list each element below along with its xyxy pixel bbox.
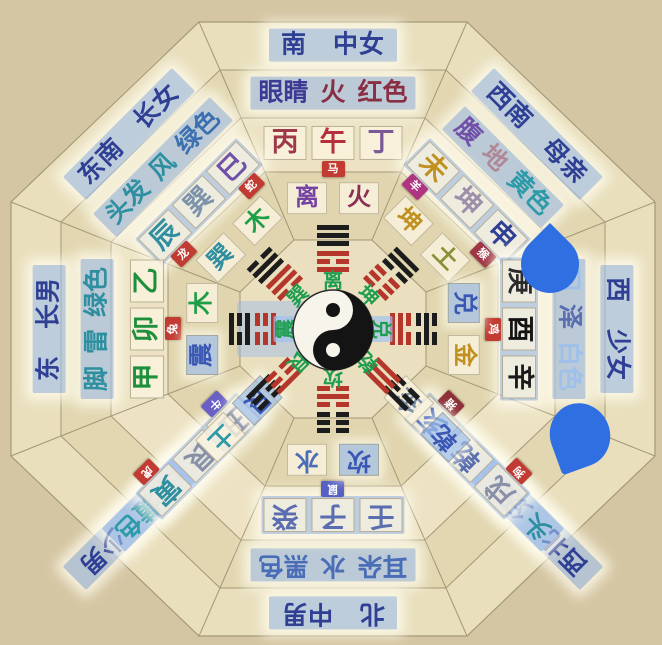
attribute-text: 水 — [320, 551, 345, 580]
direction-text: 西 — [603, 277, 632, 303]
zodiac-text: 蛇 — [243, 177, 260, 194]
taiji-black-dot — [326, 303, 340, 317]
family-member-text: 中女 — [333, 31, 385, 60]
inner-trigram-black-east — [227, 313, 251, 345]
stem-cell: 甲 — [130, 356, 164, 399]
stem-text: 酉 — [504, 316, 535, 343]
element-cell: 金 — [448, 335, 480, 375]
element-cell: 木 — [186, 283, 218, 323]
inner-trigram-black-south — [317, 223, 349, 247]
element-cell: 水 — [287, 444, 327, 476]
stem-cell: 辛 — [502, 356, 536, 399]
direction-text: 南 — [281, 31, 307, 60]
attribute-text: 眼睛 — [258, 79, 308, 108]
zodiac-text: 马 — [328, 162, 339, 175]
stem-cell: 午马 — [312, 126, 355, 160]
attribute-text: 黑色 — [258, 551, 308, 580]
stem-text: 癸 — [272, 500, 299, 531]
zodiac-text: 猴 — [474, 245, 491, 262]
trigram-name-text: 坎 — [347, 447, 371, 475]
trigram-name-cell: 离 — [287, 182, 327, 214]
trigram-element-label-south: 离火 — [287, 182, 379, 214]
family-member-text: 中男 — [281, 599, 333, 628]
family-member-text: 少女 — [603, 329, 632, 381]
attribute-text: 雷 — [83, 329, 112, 354]
zodiac-text: 牛 — [206, 396, 223, 413]
trigram-name-text: 离 — [295, 183, 319, 211]
stems-row-north: 壬子鼠癸 — [262, 496, 405, 534]
attributes-label-north: 耳朵水黑色 — [250, 549, 415, 582]
attribute-text: 绿色 — [83, 267, 112, 317]
attribute-text: 耳朵 — [358, 551, 408, 580]
zodiac-text: 龙 — [175, 245, 192, 262]
attribute-text: 红色 — [358, 79, 408, 108]
stem-text: 卯 — [131, 316, 162, 343]
direction-family-label-east: 东长男 — [33, 265, 66, 393]
trigram-name-cell: 震 — [186, 335, 218, 375]
inner-trigram-black-west — [415, 313, 439, 345]
direction-family-label-west: 西少女 — [601, 265, 634, 393]
family-member-text: 长男 — [35, 277, 64, 329]
zodiac-badge: 鼠 — [322, 481, 345, 497]
stem-cell: 酉鸡 — [502, 308, 536, 351]
trigram-element-label-west: 兑金 — [448, 283, 480, 375]
attribute-text: 白色 — [555, 341, 584, 391]
stem-cell: 壬 — [360, 498, 403, 532]
attributes-label-east: 脚雷绿色 — [81, 259, 114, 399]
zodiac-text: 猪 — [443, 396, 460, 413]
zodiac-text: 兔 — [166, 324, 179, 335]
zodiac-text: 羊 — [406, 177, 423, 194]
direction-family-label-south: 南中女 — [269, 29, 397, 62]
zodiac-badge: 鸡 — [485, 318, 501, 341]
stem-cell: 乙 — [130, 260, 164, 303]
stem-text: 甲 — [131, 364, 162, 391]
element-text: 水 — [295, 447, 319, 475]
attributes-label-south: 眼睛火红色 — [250, 77, 415, 110]
zodiac-text: 狗 — [510, 464, 527, 481]
stem-text: 丁 — [368, 127, 395, 158]
stem-cell: 丁 — [360, 126, 403, 160]
zodiac-text: 虎 — [139, 464, 156, 481]
stems-row-east: 甲卯兔乙 — [128, 258, 166, 401]
attribute-text: 脚 — [83, 366, 112, 391]
bagua-chart: 南中女眼睛火红色丙午马丁离火离东南长女头发风绿色辰龙巽巳蛇巽木巽西南母亲腹地黄色… — [0, 0, 662, 645]
element-text: 金 — [451, 343, 479, 367]
trigram-element-label-north: 坎水 — [287, 444, 379, 476]
trigram-name-cell: 兑 — [448, 283, 480, 323]
stem-text: 子 — [320, 500, 347, 531]
trigram-name-text: 兑 — [451, 291, 479, 315]
stem-cell: 癸 — [264, 498, 307, 532]
inner-trigram-black-north — [317, 411, 349, 435]
trigram-name-cell: 坎 — [339, 444, 379, 476]
trigram-name-text: 震 — [187, 343, 215, 367]
stem-text: 丙 — [272, 127, 299, 158]
element-text: 火 — [347, 183, 371, 211]
taiji-white-dot — [326, 343, 340, 357]
stem-cell: 子鼠 — [312, 498, 355, 532]
attribute-text: 泽 — [555, 304, 584, 329]
stem-cell: 丙 — [264, 126, 307, 160]
direction-family-label-north: 北中男 — [269, 597, 397, 630]
stem-text: 乙 — [131, 268, 162, 295]
stem-text: 午 — [320, 127, 347, 158]
stem-text: 壬 — [368, 500, 395, 531]
zodiac-text: 鼠 — [328, 483, 339, 496]
zodiac-text: 鸡 — [487, 324, 500, 335]
element-text: 木 — [187, 291, 215, 315]
stem-cell: 卯兔 — [130, 308, 164, 351]
zodiac-badge: 马 — [322, 161, 345, 177]
attribute-text: 火 — [320, 79, 345, 108]
element-cell: 火 — [339, 182, 379, 214]
stems-row-south: 丙午马丁 — [262, 124, 405, 162]
trigram-element-label-east: 震木 — [186, 283, 218, 375]
direction-text: 北 — [359, 599, 385, 628]
direction-text: 东 — [35, 355, 64, 381]
stem-text: 辛 — [504, 364, 535, 391]
taiji-symbol — [273, 270, 393, 390]
zodiac-badge: 兔 — [165, 318, 181, 341]
